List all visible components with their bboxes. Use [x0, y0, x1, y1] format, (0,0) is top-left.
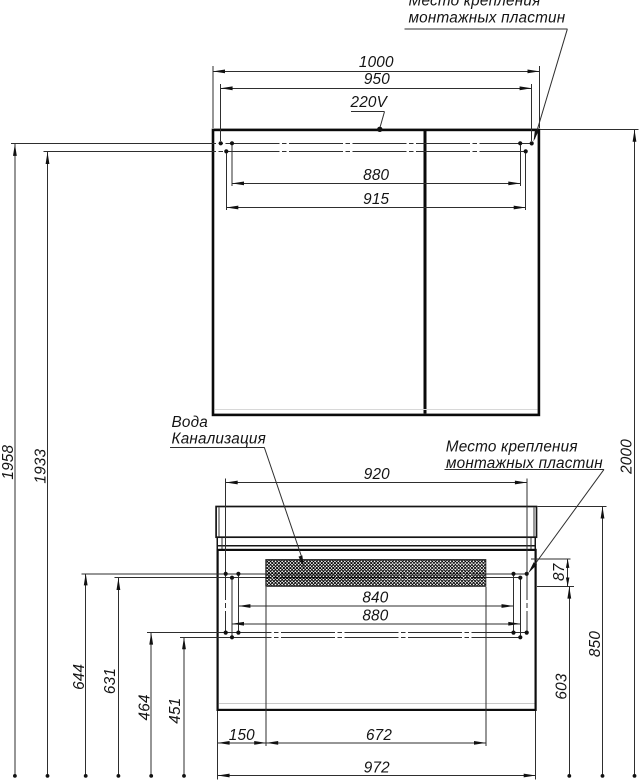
- svg-text:Вода: Вода: [172, 414, 208, 431]
- svg-text:603: 603: [554, 673, 571, 699]
- svg-text:464: 464: [136, 694, 153, 720]
- svg-text:150: 150: [229, 727, 255, 744]
- svg-text:87: 87: [551, 563, 568, 581]
- svg-text:672: 672: [366, 727, 392, 744]
- svg-text:1933: 1933: [33, 448, 50, 483]
- svg-text:972: 972: [364, 759, 390, 776]
- svg-text:Место крепления: Место крепления: [409, 0, 541, 10]
- svg-text:950: 950: [364, 71, 390, 88]
- svg-text:1000: 1000: [359, 54, 394, 71]
- svg-text:Канализация: Канализация: [172, 431, 266, 448]
- svg-text:840: 840: [362, 590, 388, 607]
- svg-text:880: 880: [362, 607, 388, 624]
- svg-text:монтажных пластин: монтажных пластин: [409, 9, 566, 26]
- svg-text:451: 451: [167, 698, 184, 724]
- svg-text:Место крепления: Место крепления: [446, 438, 578, 455]
- svg-text:1958: 1958: [0, 444, 17, 479]
- svg-text:850: 850: [587, 631, 604, 657]
- svg-text:2000: 2000: [619, 439, 636, 475]
- svg-text:220V: 220V: [350, 94, 389, 111]
- svg-text:644: 644: [71, 664, 88, 690]
- svg-text:915: 915: [363, 191, 389, 208]
- svg-text:631: 631: [102, 668, 119, 694]
- svg-text:880: 880: [363, 167, 389, 184]
- svg-text:920: 920: [364, 466, 390, 483]
